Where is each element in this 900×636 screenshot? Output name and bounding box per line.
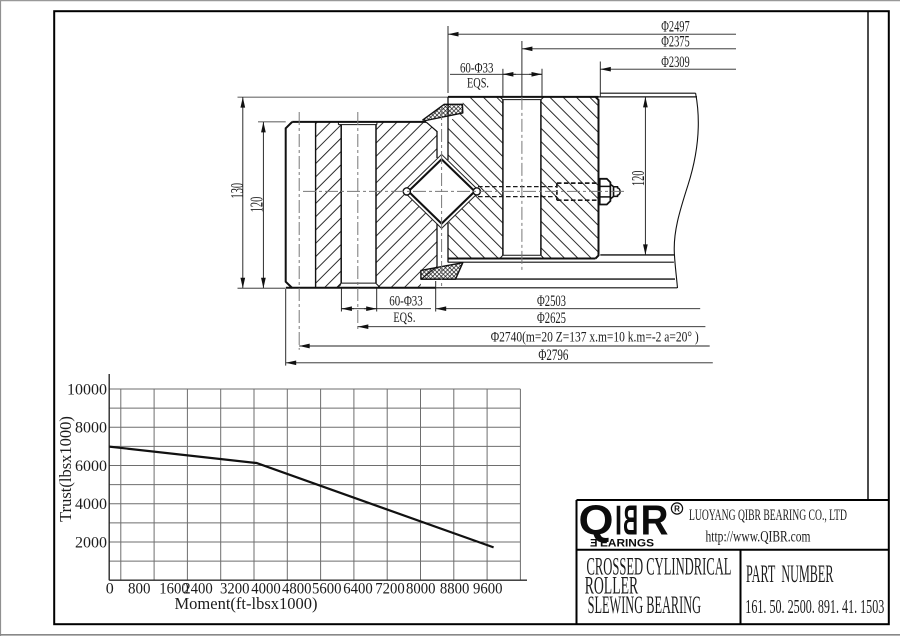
svg-text:B: B xyxy=(623,497,638,544)
svg-text:LUOYANG QIBR BEARING CO., LTD: LUOYANG QIBR BEARING CO., LTD xyxy=(689,507,847,524)
svg-text:60-Φ33: 60-Φ33 xyxy=(460,61,494,77)
svg-text:Φ2625: Φ2625 xyxy=(537,310,566,327)
svg-text:SLEWING BEARING: SLEWING BEARING xyxy=(588,592,702,619)
svg-text:0: 0 xyxy=(106,581,114,598)
svg-text:10000: 10000 xyxy=(67,381,107,398)
svg-text:2000: 2000 xyxy=(75,534,107,551)
svg-text:Φ2309: Φ2309 xyxy=(661,54,690,71)
svg-text:Φ2503: Φ2503 xyxy=(537,293,566,310)
svg-text:120: 120 xyxy=(628,171,648,187)
svg-text:R: R xyxy=(641,497,669,544)
svg-text:6400: 6400 xyxy=(343,581,373,598)
svg-text:R: R xyxy=(674,505,680,514)
svg-text:EQS.: EQS. xyxy=(393,310,415,326)
svg-text:161. 50. 2500. 891. 41. 1503: 161. 50. 2500. 891. 41. 1503 xyxy=(745,597,884,618)
svg-text:4000: 4000 xyxy=(75,496,107,513)
svg-text:8000: 8000 xyxy=(75,420,107,437)
svg-text:EARINGS: EARINGS xyxy=(600,538,654,550)
svg-text:8000: 8000 xyxy=(406,581,436,598)
svg-text:Φ2740(m=20 Z=137 x.m=10 k.m=-2: Φ2740(m=20 Z=137 x.m=10 k.m=-2 a=20° ) xyxy=(491,330,699,346)
svg-text:800: 800 xyxy=(128,581,151,598)
svg-text:130: 130 xyxy=(227,183,247,199)
svg-text:Trust(lbsx1000): Trust(lbsx1000) xyxy=(56,416,75,522)
svg-text:Moment(ft-lbsx1000): Moment(ft-lbsx1000) xyxy=(175,594,318,613)
svg-text:9600: 9600 xyxy=(473,581,503,598)
svg-text:120: 120 xyxy=(247,197,267,213)
svg-text:8800: 8800 xyxy=(440,581,470,598)
svg-text:7200: 7200 xyxy=(375,581,405,598)
svg-text:EQS.: EQS. xyxy=(467,76,489,92)
svg-text:E: E xyxy=(590,538,598,550)
svg-text:60-Φ33: 60-Φ33 xyxy=(389,294,423,310)
svg-text:Φ2375: Φ2375 xyxy=(661,34,690,51)
svg-text:Φ2796: Φ2796 xyxy=(538,347,568,364)
svg-text:6000: 6000 xyxy=(75,458,107,475)
svg-text:I: I xyxy=(615,497,622,544)
svg-text:PART NUMBER: PART NUMBER xyxy=(746,561,834,588)
svg-text:http://www.QIBR.com: http://www.QIBR.com xyxy=(706,529,811,546)
svg-text:Q: Q xyxy=(579,497,614,544)
